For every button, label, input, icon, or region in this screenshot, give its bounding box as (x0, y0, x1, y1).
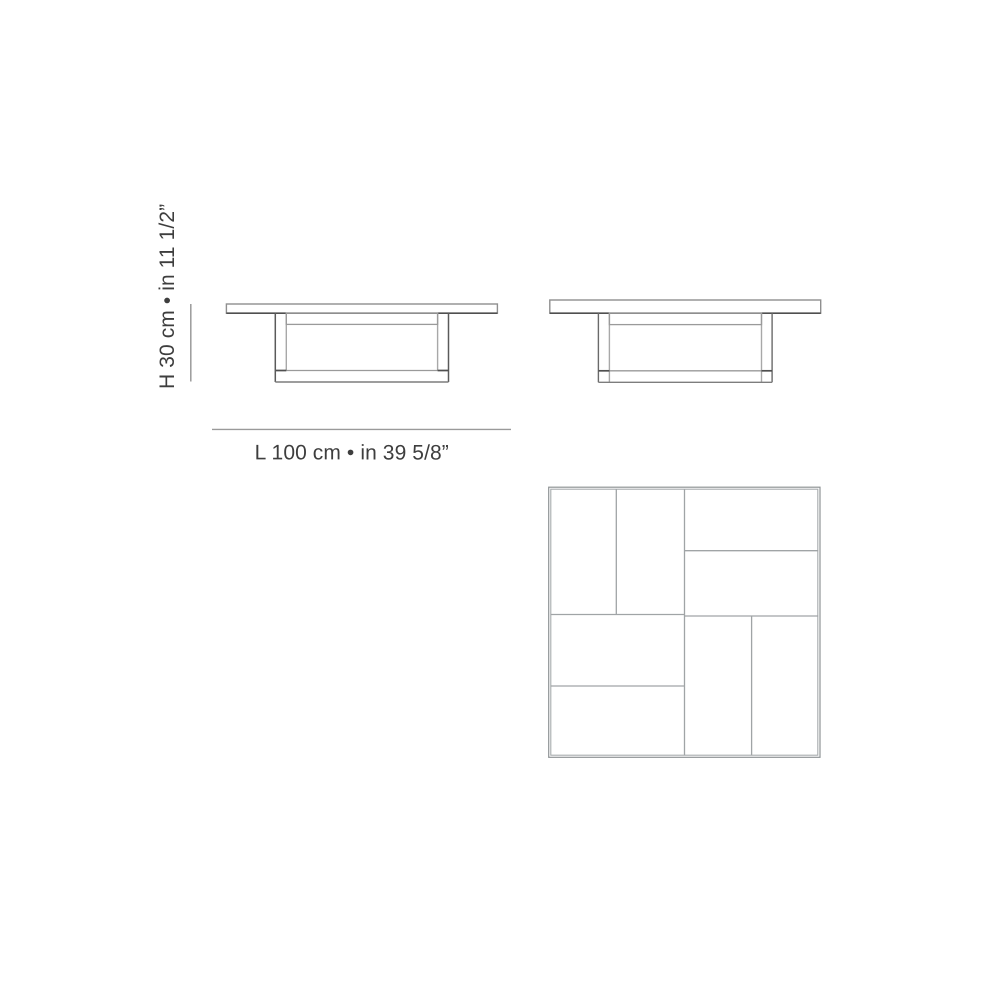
svg-text:L 100 cm • in 39 5/8”: L 100 cm • in 39 5/8” (255, 441, 449, 464)
svg-text:H 30 cm • in 11 1/2”: H 30 cm • in 11 1/2” (156, 204, 179, 389)
